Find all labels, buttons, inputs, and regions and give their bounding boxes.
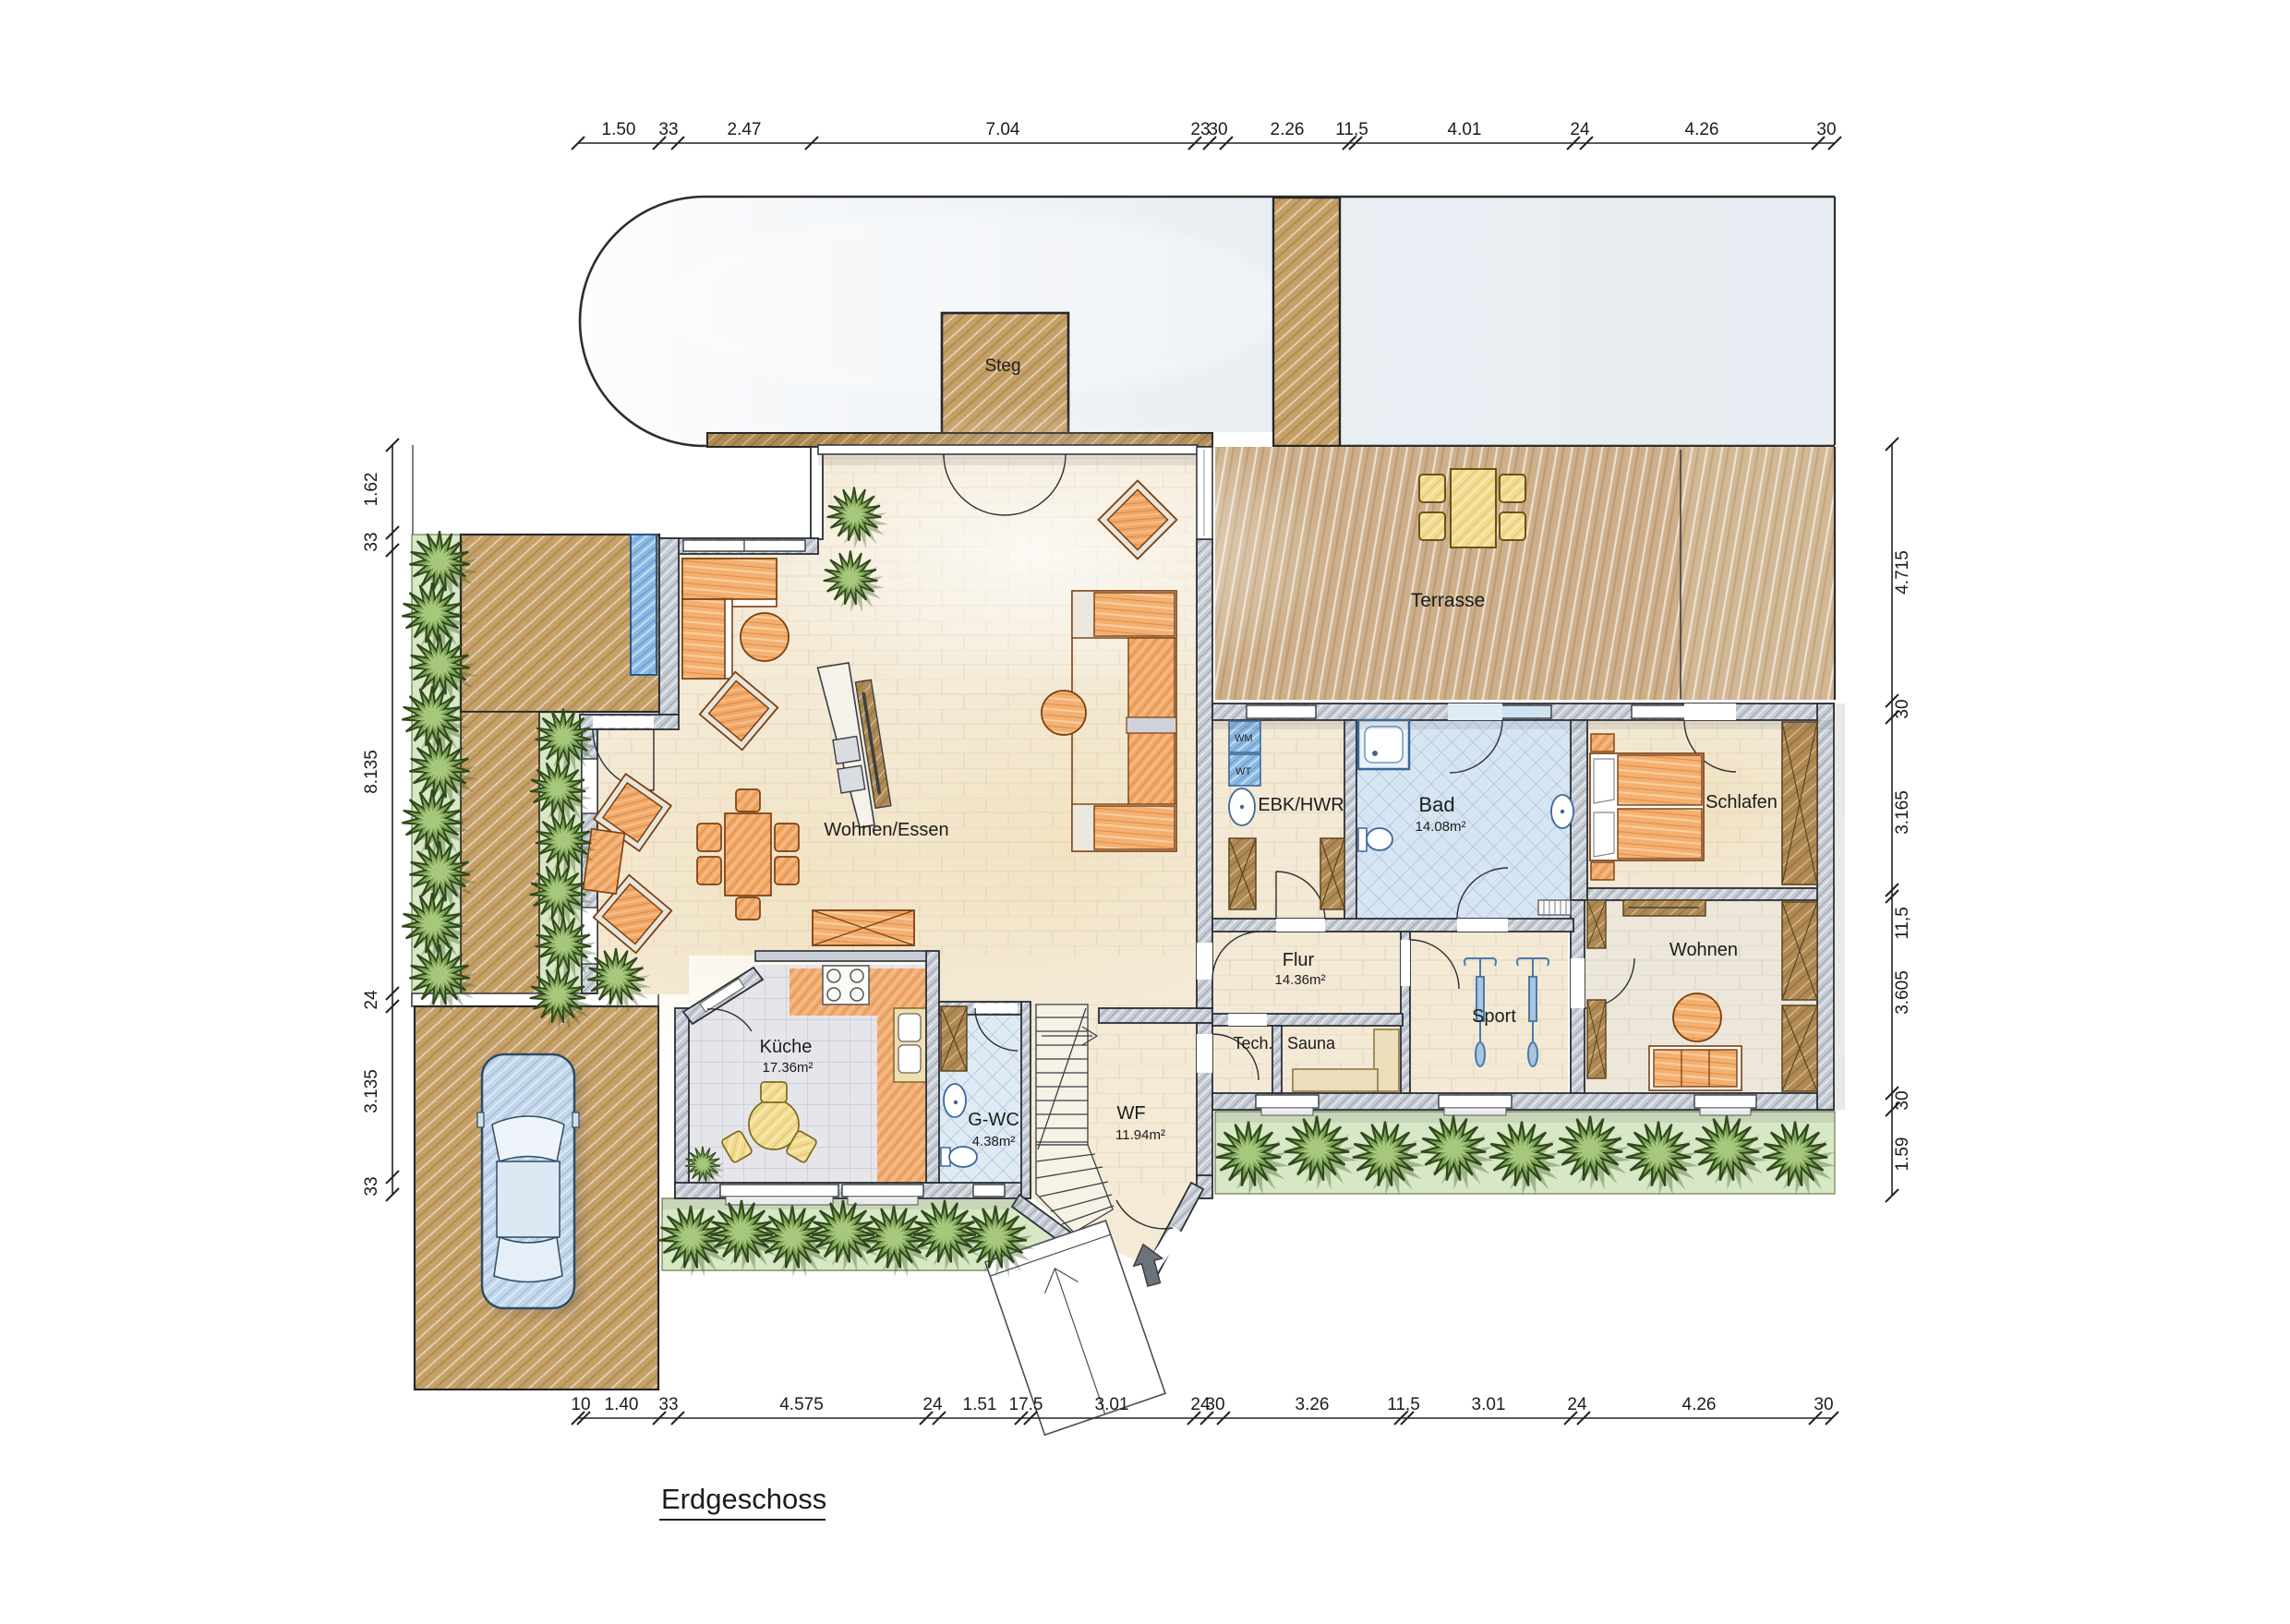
svg-text:Bad: Bad <box>1418 793 1454 816</box>
svg-text:Tech.: Tech. <box>1233 1034 1272 1053</box>
svg-text:4.01: 4.01 <box>1448 120 1482 139</box>
svg-text:Sauna: Sauna <box>1287 1034 1336 1053</box>
svg-text:4.26: 4.26 <box>1685 120 1719 139</box>
svg-text:11,5: 11,5 <box>1893 907 1912 940</box>
svg-text:Sport: Sport <box>1472 1006 1516 1027</box>
svg-text:11,5: 11,5 <box>1335 120 1368 139</box>
svg-text:23: 23 <box>1190 120 1210 139</box>
svg-text:24: 24 <box>1567 1395 1587 1414</box>
svg-text:7.04: 7.04 <box>986 120 1020 139</box>
svg-text:WT: WT <box>1235 766 1251 777</box>
svg-text:4.715: 4.715 <box>1893 550 1912 595</box>
svg-text:14.08m²: 14.08m² <box>1415 819 1465 835</box>
svg-text:33: 33 <box>362 532 381 551</box>
svg-text:11,5: 11,5 <box>1387 1395 1420 1414</box>
svg-text:30: 30 <box>1893 699 1912 718</box>
svg-text:30: 30 <box>1205 1395 1224 1414</box>
svg-text:33: 33 <box>362 1176 381 1196</box>
svg-text:3.605: 3.605 <box>1893 970 1912 1015</box>
svg-text:24: 24 <box>922 1395 943 1414</box>
svg-text:4.38m²: 4.38m² <box>972 1134 1016 1149</box>
svg-text:WM: WM <box>1235 733 1253 744</box>
svg-text:10: 10 <box>571 1395 590 1414</box>
svg-text:EBK/HWR: EBK/HWR <box>1258 795 1344 815</box>
svg-text:Wohnen: Wohnen <box>1669 940 1738 960</box>
svg-text:3.165: 3.165 <box>1893 790 1912 835</box>
svg-text:4.26: 4.26 <box>1682 1395 1717 1414</box>
svg-text:3.26: 3.26 <box>1296 1395 1330 1414</box>
svg-text:1.51: 1.51 <box>963 1395 997 1414</box>
svg-text:30: 30 <box>1816 120 1836 139</box>
svg-text:Schlafen: Schlafen <box>1705 792 1778 812</box>
svg-text:1.40: 1.40 <box>605 1395 639 1414</box>
svg-text:30: 30 <box>1893 1090 1912 1110</box>
svg-text:2.26: 2.26 <box>1271 120 1305 139</box>
svg-text:Wohnen/Essen: Wohnen/Essen <box>824 820 948 840</box>
svg-text:Flur: Flur <box>1283 950 1315 970</box>
svg-text:24: 24 <box>1570 120 1590 139</box>
svg-text:8.135: 8.135 <box>362 750 381 794</box>
svg-text:1.50: 1.50 <box>602 120 636 139</box>
svg-text:1.62: 1.62 <box>362 473 381 507</box>
svg-text:3.01: 3.01 <box>1095 1395 1129 1414</box>
svg-text:14.36m²: 14.36m² <box>1274 972 1325 988</box>
svg-text:WF: WF <box>1116 1103 1145 1124</box>
svg-text:Steg: Steg <box>984 356 1020 376</box>
svg-text:30: 30 <box>1814 1395 1833 1414</box>
svg-text:3.01: 3.01 <box>1472 1395 1506 1414</box>
svg-text:Terrasse: Terrasse <box>1411 590 1486 611</box>
svg-text:Erdgeschoss: Erdgeschoss <box>661 1483 826 1515</box>
svg-text:4.575: 4.575 <box>779 1395 824 1414</box>
svg-text:30: 30 <box>1208 120 1227 139</box>
svg-text:G-WC: G-WC <box>968 1110 1019 1130</box>
svg-text:2.47: 2.47 <box>728 120 762 139</box>
svg-text:24: 24 <box>362 990 381 1010</box>
svg-text:Küche: Küche <box>760 1037 813 1057</box>
svg-text:17.36m²: 17.36m² <box>762 1060 813 1076</box>
svg-text:17.5: 17.5 <box>1009 1395 1043 1414</box>
svg-text:1.59: 1.59 <box>1893 1137 1912 1172</box>
svg-text:3.135: 3.135 <box>362 1069 381 1113</box>
svg-text:33: 33 <box>658 1395 678 1414</box>
svg-text:33: 33 <box>658 120 678 139</box>
svg-text:11.94m²: 11.94m² <box>1115 1127 1165 1143</box>
